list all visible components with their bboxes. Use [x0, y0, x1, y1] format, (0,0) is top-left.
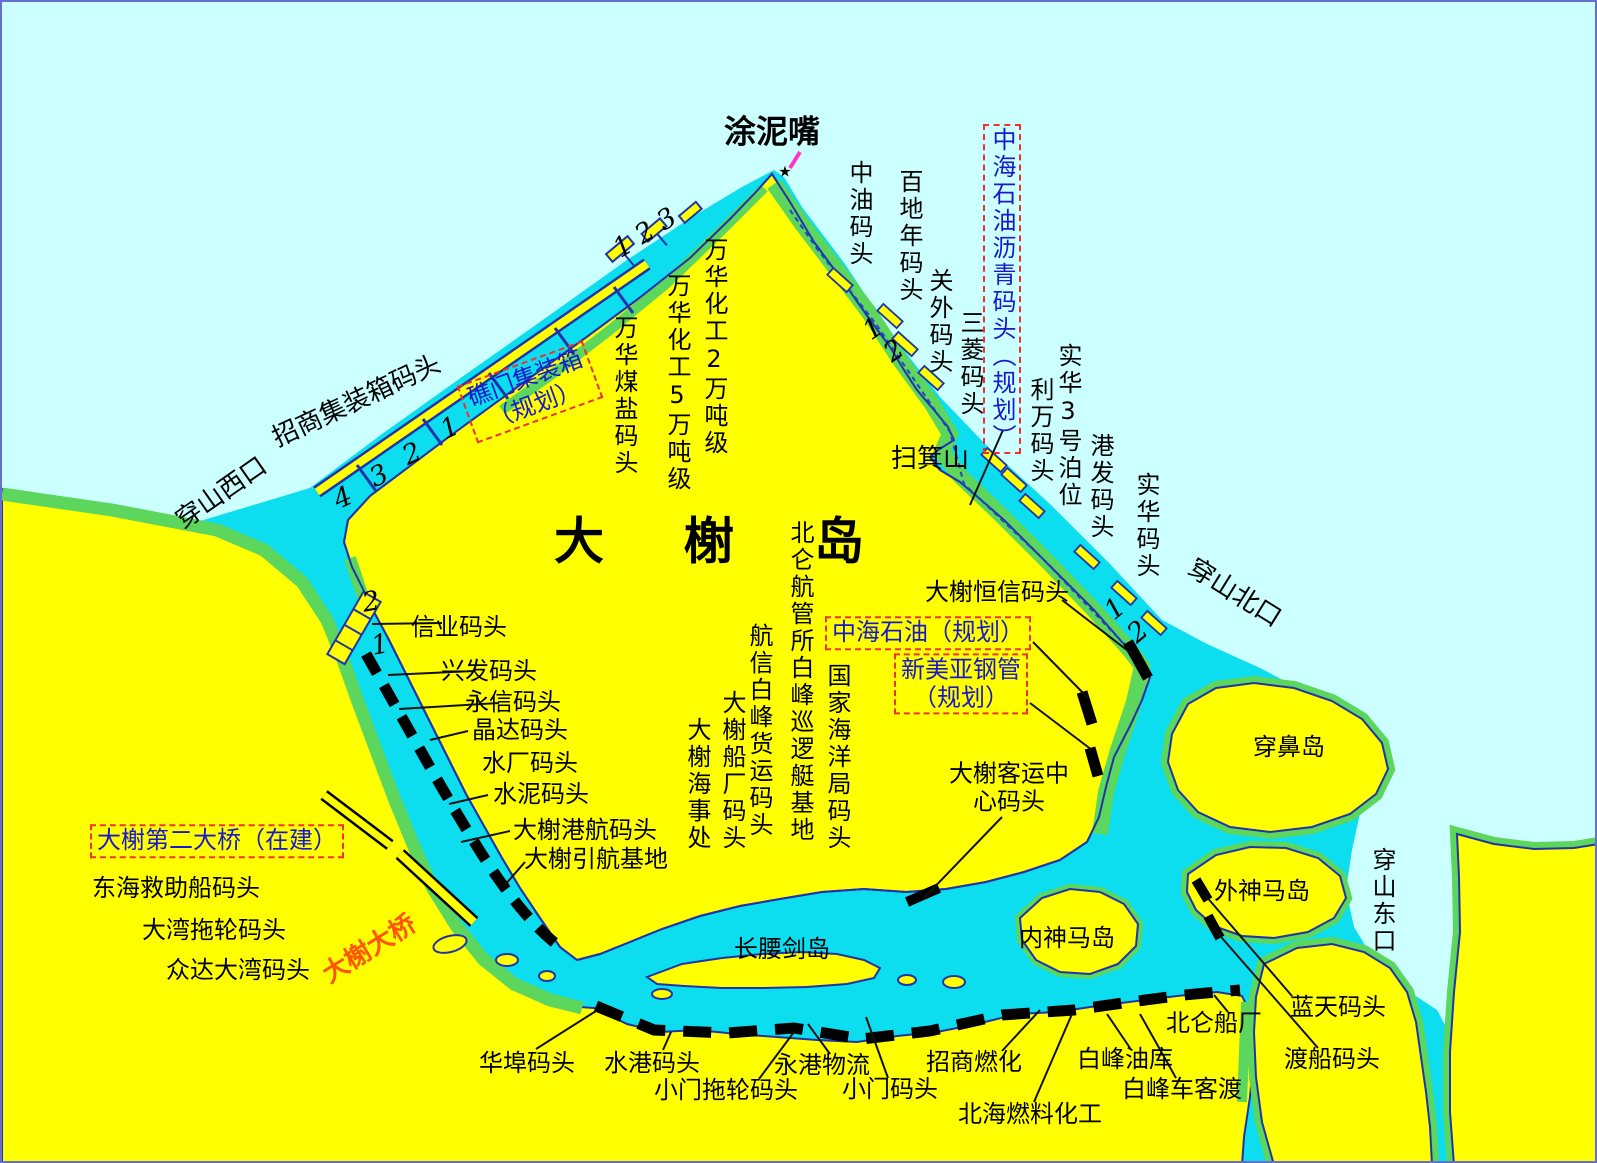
label-zhonghai-shiyou: 中海石油（规划）: [825, 616, 1031, 650]
label-ganghang: 大榭港航码头: [513, 817, 657, 845]
label-daxie-chuanchang: 大榭船厂码头: [720, 690, 744, 852]
label-sanling: 三菱码头: [958, 310, 982, 418]
label-beilun-chuanchang: 北仑船厂: [1166, 1010, 1262, 1038]
label-guojia-haiyangju: 国家海洋局码头: [825, 663, 849, 852]
label-liwan: 利万码头: [1028, 377, 1052, 485]
label-hangxin-baifeng: 航信白峰货运码头: [747, 623, 771, 839]
port-map: 涂泥嘴★扫箕山大榭岛大榭恒信码头信业码头兴发码头永信码头晶达码头水厂码头水泥码头…: [0, 0, 1597, 1163]
label-lantian: 蓝天码头: [1290, 994, 1386, 1022]
label-zhaoshang-jizhuangxiang: 招商集装箱码头: [268, 350, 446, 454]
label-baifeng-chekedu: 白峰车客渡: [1122, 1076, 1242, 1104]
label-daxie-daqiao: 大榭大桥: [318, 910, 422, 990]
label-waishenma: 外神马岛: [1214, 878, 1310, 906]
label-zhaoshang-ranhua: 招商燃化: [926, 1049, 1022, 1077]
label-changyaojian: 长腰剑岛: [734, 936, 830, 964]
label-daxie-haishichu: 大榭海事处: [685, 717, 709, 852]
label-num-1c: 1: [369, 628, 391, 662]
label-jingda: 晶达码头: [472, 717, 568, 745]
label-num-3: 3: [365, 458, 394, 493]
label-wanhua5: 万华化工5万吨级: [665, 273, 689, 493]
label-yongxin: 永信码头: [465, 689, 561, 717]
label-zhonghai-liqing: 中海石油沥青码头（规划）: [983, 124, 1021, 454]
label-beilun-hangguan: 北仑航管所白峰巡逻艇基地: [788, 520, 812, 844]
label-shuichang: 水厂码头: [482, 750, 578, 778]
label-xinye: 信业码头: [411, 614, 507, 642]
label-xiaomen-tuolun: 小门拖轮码头: [654, 1077, 798, 1105]
label-baidinian: 百地年码头: [897, 169, 921, 304]
label-shihua3: 实华3号泊位: [1056, 343, 1080, 509]
label-wanhua2: 万华化工2万吨级: [702, 237, 726, 457]
label-neishenma: 内神马岛: [1019, 925, 1115, 953]
label-num-4: 4: [329, 480, 358, 515]
label-num-2b: 2: [878, 333, 910, 368]
label-tunizui-star: ★: [778, 163, 791, 180]
label-gangfa: 港发码头: [1088, 433, 1112, 541]
label-guanwai: 关外码头: [927, 268, 951, 376]
label-dier-daqiao: 大榭第二大桥（在建）: [90, 824, 344, 858]
label-jiaomen: 礁门集装箱 （规划）: [457, 340, 604, 443]
label-num-1a: 1: [436, 410, 465, 445]
label-dawan-tuolun: 大湾拖轮码头: [142, 917, 286, 945]
label-keyun: 大榭客运中 心码头: [949, 760, 1069, 815]
label-yinhang: 大榭引航基地: [524, 846, 668, 874]
label-shuini: 水泥码头: [493, 781, 589, 809]
label-num-2c: 2: [360, 585, 382, 619]
label-xingfa: 兴发码头: [441, 658, 537, 686]
label-zhongda: 众达大湾码头: [166, 957, 310, 985]
label-shihua: 实华码头: [1134, 472, 1158, 580]
map-labels: 涂泥嘴★扫箕山大榭岛大榭恒信码头信业码头兴发码头永信码头晶达码头水厂码头水泥码头…: [2, 2, 1595, 1161]
label-zhongyou: 中油码头: [847, 160, 871, 268]
label-xiaomen: 小门码头: [842, 1076, 938, 1104]
label-num-2a: 2: [398, 436, 427, 471]
label-chuanshan-dongkou: 穿山东口: [1370, 847, 1394, 955]
label-daxie-title: 大榭岛: [554, 513, 944, 571]
label-chuanshan-xikou: 穿山西口: [171, 452, 273, 536]
label-donghai: 东海救助船码头: [92, 875, 260, 903]
label-chuanbidao: 穿鼻岛: [1253, 734, 1325, 762]
label-tunizui: 涂泥嘴: [724, 114, 820, 151]
label-baifeng-youku: 白峰油库: [1077, 1046, 1173, 1074]
label-beihai-ranliao: 北海燃料化工: [958, 1101, 1102, 1129]
label-num-2d: 2: [1121, 615, 1154, 650]
label-shuigang: 水港码头: [604, 1050, 700, 1078]
label-xinmeiya: 新美亚钢管 （规划）: [894, 653, 1028, 714]
label-duchuan: 渡船码头: [1284, 1046, 1380, 1074]
label-chuanshan-beikou: 穿山北口: [1182, 554, 1286, 634]
label-saojishan: 扫箕山: [891, 445, 969, 475]
label-huabu: 华埠码头: [479, 1050, 575, 1078]
label-num-123: 1 2 3: [608, 202, 683, 265]
label-hengxin: 大榭恒信码头: [925, 579, 1069, 607]
label-wanhua-meiyan: 万华煤盐码头: [612, 315, 636, 477]
